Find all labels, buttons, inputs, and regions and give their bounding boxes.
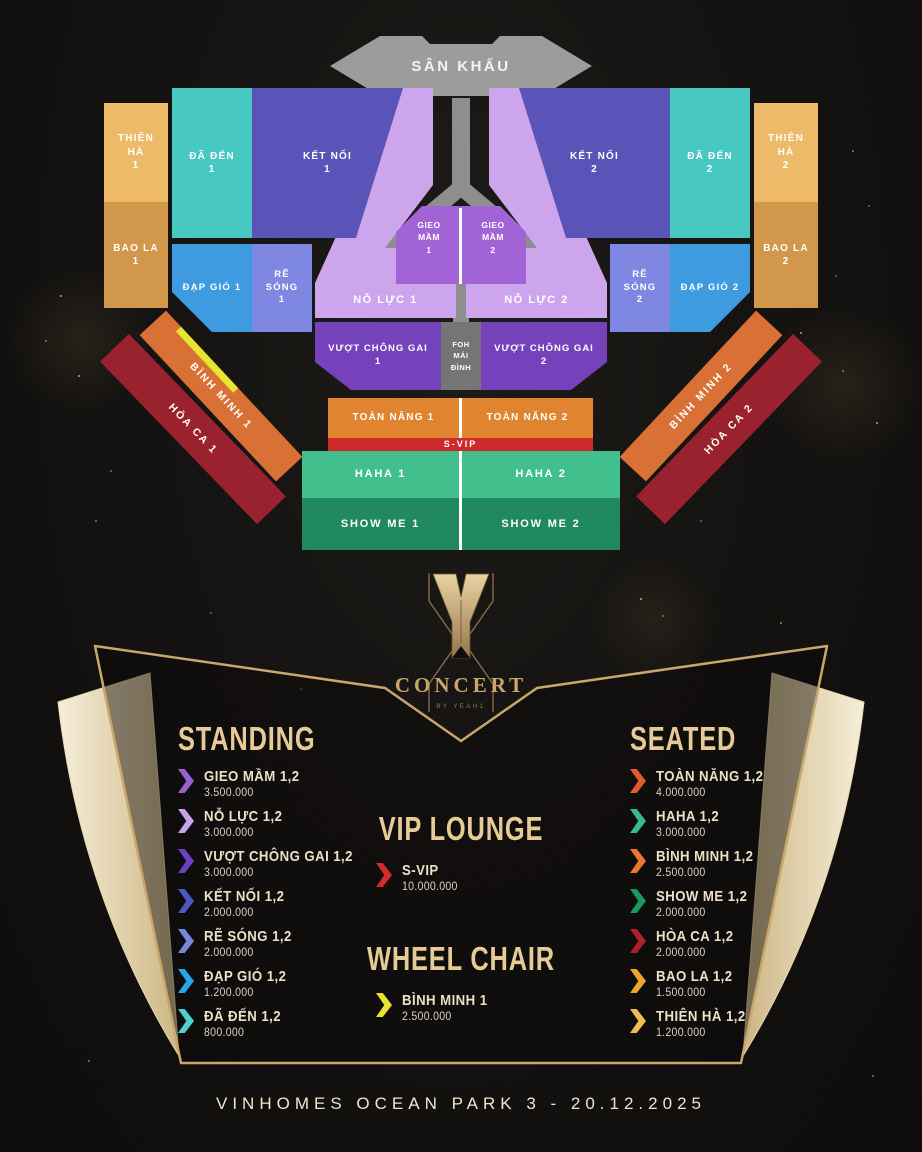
section-vuot-chong-gai-2: VƯỢT CHÔNG GAI2 <box>481 322 607 390</box>
gold-dust-specks <box>0 0 2 2</box>
chevron-icon <box>376 993 392 1017</box>
list-item: BÌNH MINH 12.500.000 <box>376 992 592 1023</box>
section-toan-nang-2: TOÀN NĂNG 2 <box>462 398 593 438</box>
chevron-icon <box>178 769 194 793</box>
section-gieo-mam-2: GIEOMẦM2 <box>462 219 524 256</box>
chevron-icon <box>630 849 646 873</box>
section-label: S-VIP <box>444 438 478 450</box>
chevron-icon <box>630 969 646 993</box>
section-label: RẼSÓNG2 <box>624 269 657 307</box>
section-dap-gio-2: ĐẠP GIÓ 2 <box>670 244 750 332</box>
section-re-song-2: RẼSÓNG2 <box>610 244 670 332</box>
list-item: HÒA CA 1,22.000.000 <box>630 928 865 959</box>
section-thien-ha-2: THIÊNHÀ2 <box>754 103 818 202</box>
section-label: NỖ LỰC 1 <box>315 284 456 316</box>
section-label: VƯỢT CHÔNG GAI2 <box>494 343 594 369</box>
section-label: HAHA 1 <box>355 467 406 482</box>
section-label: THIÊNHÀ1 <box>118 132 154 173</box>
section-label: BAO LA1 <box>113 242 159 269</box>
section-da-den-2: ĐÃ ĐẾN2 <box>670 88 750 238</box>
chevron-icon <box>178 969 194 993</box>
section-da-den-1: ĐÃ ĐẾN1 <box>172 88 252 238</box>
section-bao-la-2: BAO LA2 <box>754 202 818 308</box>
left-wing-ornament <box>58 673 179 1056</box>
foh-label: FOHMÁIĐÌNH <box>451 339 471 373</box>
section-haha-2: HAHA 2 <box>462 451 620 498</box>
wheel-chair-heading: WHEEL CHAIR <box>354 940 569 979</box>
section-gieo-mam-1: GIEOMẦM1 <box>398 219 460 256</box>
section-thien-ha-1: THIÊNHÀ1 <box>104 103 168 202</box>
chevron-icon <box>630 929 646 953</box>
chevron-icon <box>178 1009 194 1033</box>
list-item: TOÀN NĂNG 1,24.000.000 <box>630 768 865 799</box>
section-label: TOÀN NĂNG 1 <box>353 411 435 425</box>
stage-label: SÂN KHẤU <box>411 58 510 75</box>
seated-price-list: SEATED TOÀN NĂNG 1,24.000.000 HAHA 1,23.… <box>630 720 865 1039</box>
vip-lounge-price-list: VIP LOUNGE S-VIP10.000.000 <box>330 810 592 893</box>
chevron-icon <box>178 929 194 953</box>
logo-subtitle: BY YEAH1 <box>436 704 485 710</box>
list-item: BÌNH MINH 1,22.500.000 <box>630 848 865 879</box>
y-logo <box>429 573 493 712</box>
chevron-icon <box>630 769 646 793</box>
list-item: THIÊN HÀ 1,21.200.000 <box>630 1008 865 1039</box>
section-label: KẾT NỐI2 <box>570 150 619 177</box>
section-vuot-chong-gai-1: VƯỢT CHÔNG GAI1 <box>315 322 441 390</box>
list-item: HAHA 1,23.000.000 <box>630 808 865 839</box>
center-divider <box>459 208 462 284</box>
section-bao-la-1: BAO LA1 <box>104 202 168 308</box>
wheel-chair-price-list: WHEEL CHAIR BÌNH MINH 12.500.000 <box>330 940 592 1023</box>
section-label: ĐẠP GIÓ 1 <box>183 282 242 295</box>
section-label: ĐÃ ĐẾN2 <box>687 150 733 177</box>
section-haha-1: HAHA 1 <box>302 451 459 498</box>
section-label: TOÀN NĂNG 2 <box>487 411 569 425</box>
list-item: SHOW ME 1,22.000.000 <box>630 888 865 919</box>
section-s-vip: S-VIP <box>328 438 593 451</box>
section-label: NỖ LỰC 2 <box>466 284 607 316</box>
center-divider <box>459 398 462 438</box>
center-divider <box>459 451 462 550</box>
section-dap-gio-1: ĐẠP GIÓ 1 <box>172 244 252 332</box>
venue-date-text: VINHOMES OCEAN PARK 3 - 20.12.2025 <box>0 1094 922 1114</box>
section-label: RẼSÓNG1 <box>266 269 299 307</box>
section-label: SHOW ME 1 <box>341 517 420 532</box>
list-item: BAO LA 1,21.500.000 <box>630 968 865 999</box>
chevron-icon <box>630 889 646 913</box>
gold-dust-glow <box>590 560 720 680</box>
section-label: VƯỢT CHÔNG GAI1 <box>328 343 428 369</box>
chevron-icon <box>630 809 646 833</box>
foh-booth: FOHMÁIĐÌNH <box>441 322 481 390</box>
list-item: S-VIP10.000.000 <box>376 862 592 893</box>
chevron-icon <box>376 863 392 887</box>
chevron-icon <box>178 809 194 833</box>
section-label: THIÊNHÀ2 <box>768 132 804 173</box>
section-label: BAO LA2 <box>763 242 809 269</box>
section-toan-nang-1: TOÀN NĂNG 1 <box>328 398 459 438</box>
section-show-me-2: SHOW ME 2 <box>462 498 620 550</box>
chevron-icon <box>178 849 194 873</box>
standing-heading: STANDING <box>178 720 371 759</box>
concert-logo-text: CONCERT <box>395 673 527 697</box>
section-label: SHOW ME 2 <box>501 517 580 532</box>
seated-heading: SEATED <box>630 720 823 759</box>
vip-lounge-heading: VIP LOUNGE <box>354 810 569 849</box>
chevron-icon <box>178 889 194 913</box>
chevron-icon <box>630 1009 646 1033</box>
catwalk-runway <box>452 98 470 194</box>
section-label: HAHA 2 <box>515 467 566 482</box>
section-label: KẾT NỐI1 <box>303 150 352 177</box>
section-show-me-1: SHOW ME 1 <box>302 498 459 550</box>
section-re-song-1: RẼSÓNG1 <box>252 244 312 332</box>
list-item: GIEO MẦM 1,23.500.000 <box>178 768 413 799</box>
section-label: ĐÃ ĐẾN1 <box>189 150 235 177</box>
concert-seating-poster: HÒA CA 1 BÌNH MINH 1 HÒA CA 2 BÌNH MINH … <box>0 0 922 1152</box>
section-label: ĐẠP GIÓ 2 <box>681 282 740 295</box>
